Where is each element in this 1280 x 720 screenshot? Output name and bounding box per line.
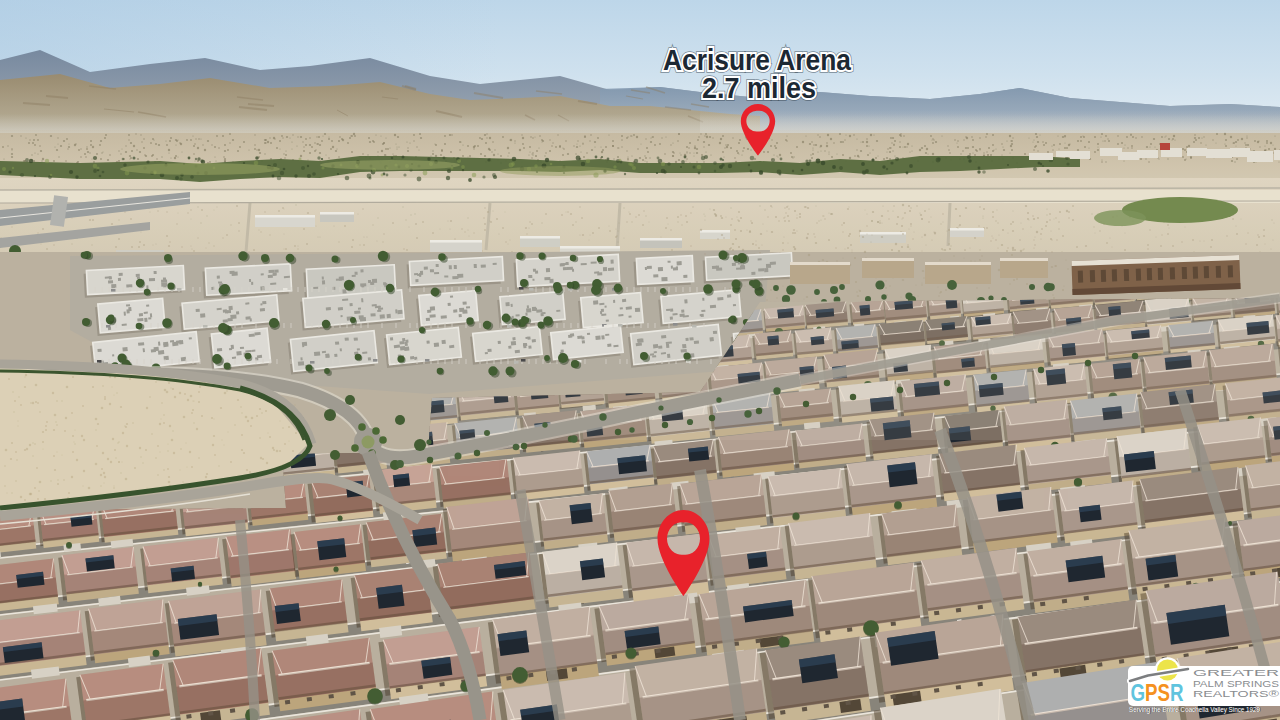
svg-text:GREATER: GREATER	[1193, 668, 1280, 678]
svg-text:GPSR: GPSR	[1131, 680, 1184, 706]
svg-text:REALTORS®: REALTORS®	[1193, 689, 1280, 699]
svg-text:PALM SPRINGS: PALM SPRINGS	[1193, 679, 1279, 689]
svg-text:Serving the Entire Coachella V: Serving the Entire Coachella Valley Sinc…	[1129, 705, 1260, 714]
svg-text:2.7 miles: 2.7 miles	[702, 71, 816, 104]
